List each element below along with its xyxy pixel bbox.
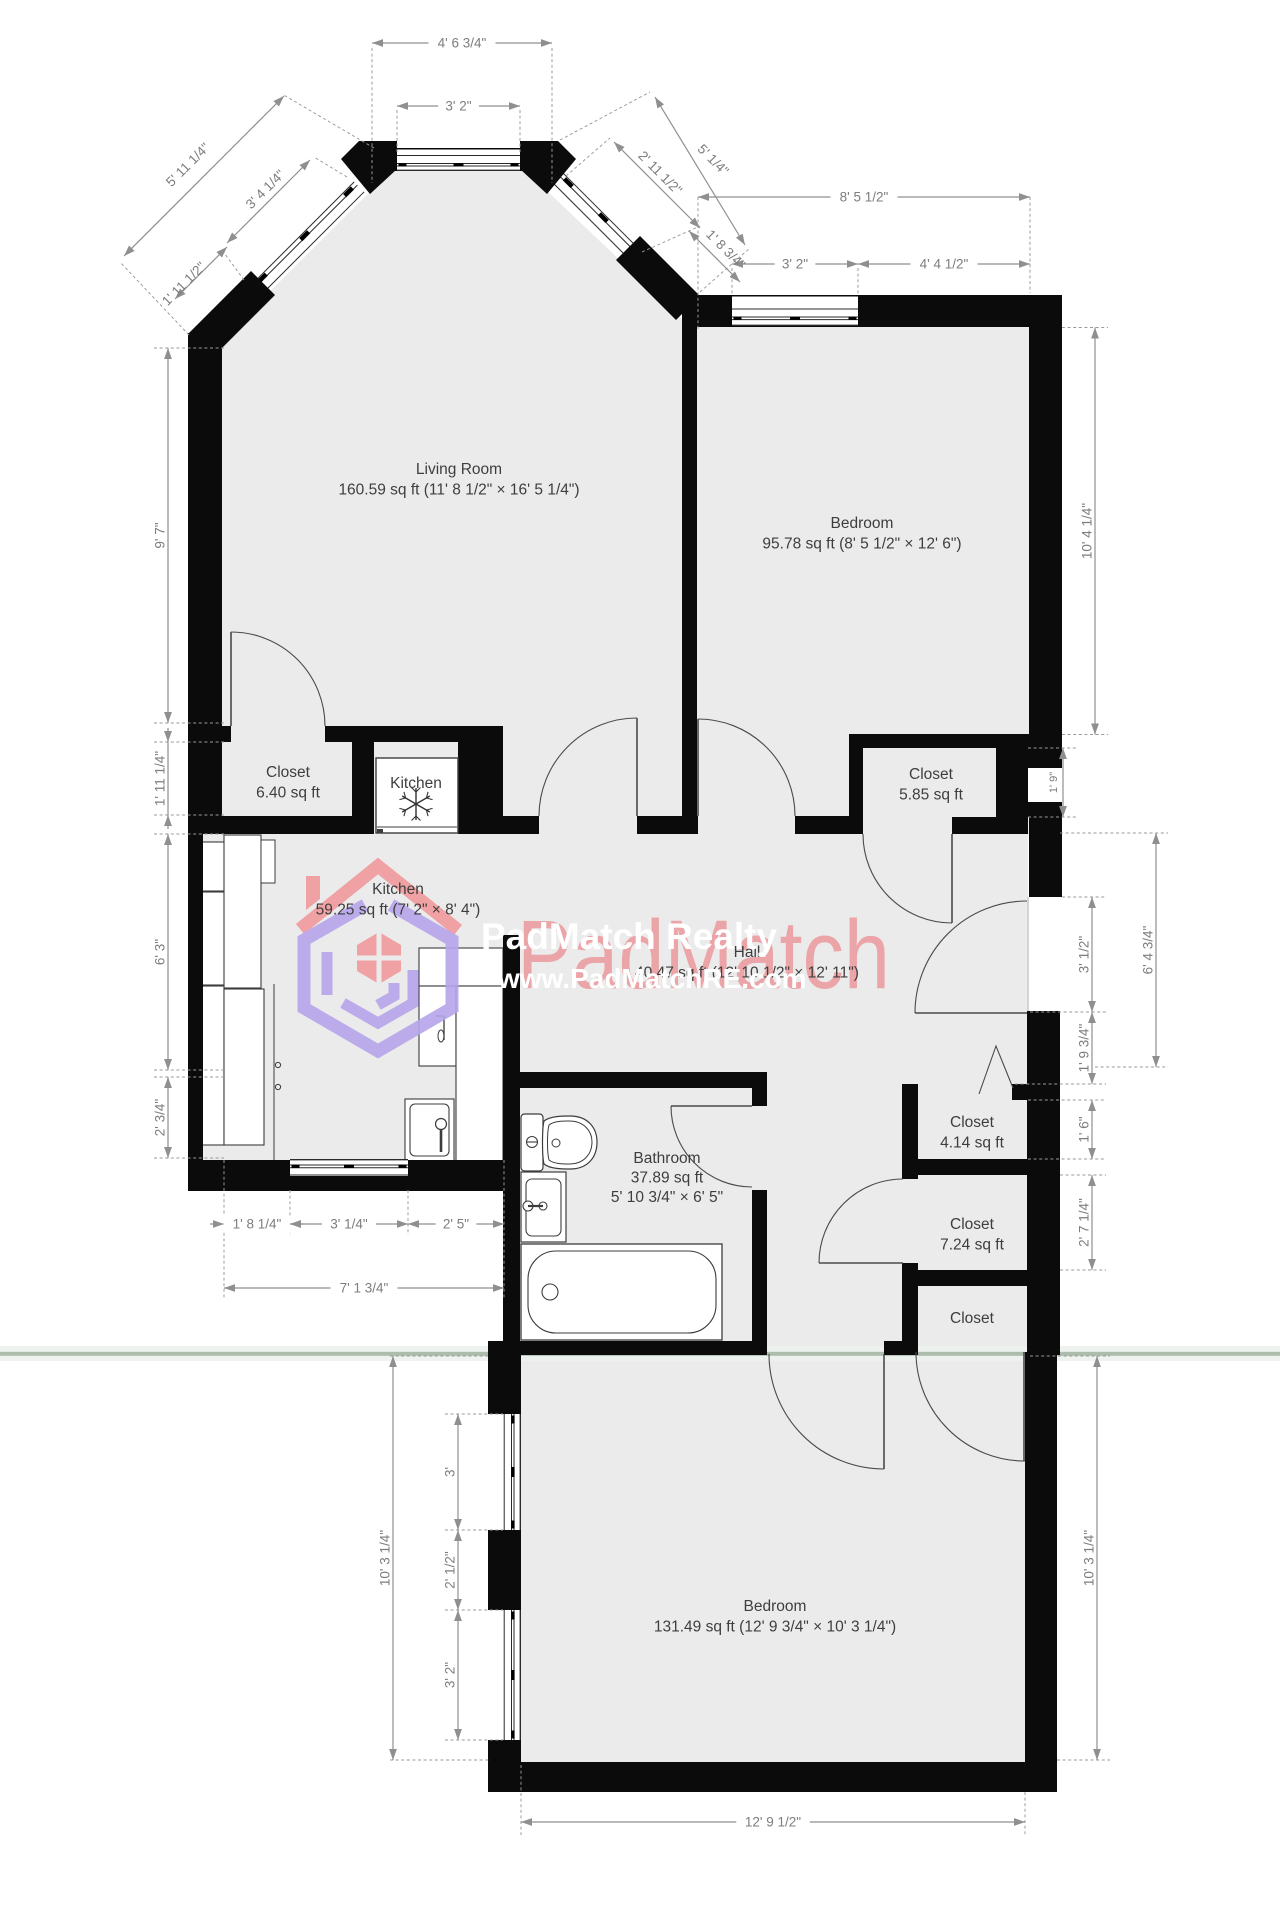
svg-text:3': 3' (443, 1467, 458, 1477)
svg-text:6' 3": 6' 3" (153, 939, 168, 965)
svg-text:4' 6 3/4": 4' 6 3/4" (438, 36, 487, 51)
svg-text:Closet: Closet (266, 764, 311, 781)
svg-text:7' 1 3/4": 7' 1 3/4" (340, 1281, 389, 1296)
svg-text:1' 9": 1' 9" (1048, 772, 1060, 793)
svg-text:Bathroom: Bathroom (633, 1150, 700, 1167)
svg-text:2' 3/4": 2' 3/4" (153, 1099, 168, 1137)
svg-text:5' 10 3/4" × 6' 5": 5' 10 3/4" × 6' 5" (611, 1189, 723, 1206)
svg-text:10' 4 1/4": 10' 4 1/4" (1080, 503, 1095, 559)
svg-text:8' 5 1/2": 8' 5 1/2" (840, 190, 889, 205)
svg-text:2' 1/2": 2' 1/2" (443, 1551, 458, 1589)
svg-text:Closet: Closet (909, 766, 954, 783)
svg-text:Closet: Closet (950, 1216, 995, 1233)
svg-text:Bedroom: Bedroom (744, 1598, 807, 1615)
svg-text:6' 4 3/4": 6' 4 3/4" (1141, 925, 1156, 974)
svg-text:6.40 sq ft: 6.40 sq ft (256, 785, 320, 802)
svg-text:131.49 sq ft (12' 9 3/4" × 10': 131.49 sq ft (12' 9 3/4" × 10' 3 1/4") (654, 1619, 896, 1636)
svg-text:1' 8 1/4": 1' 8 1/4" (233, 1217, 282, 1232)
svg-text:10' 3 1/4": 10' 3 1/4" (1082, 1530, 1097, 1586)
svg-text:160.59 sq ft (11' 8 1/2" × 16': 160.59 sq ft (11' 8 1/2" × 16' 5 1/4") (338, 482, 579, 499)
svg-text:95.78 sq ft (8' 5 1/2" × 12' 6: 95.78 sq ft (8' 5 1/2" × 12' 6") (762, 536, 961, 553)
svg-text:Closet: Closet (950, 1310, 995, 1327)
svg-text:1' 9 3/4": 1' 9 3/4" (1077, 1023, 1092, 1072)
svg-text:12' 9 1/2": 12' 9 1/2" (745, 1815, 801, 1830)
svg-text:3' 2": 3' 2" (445, 99, 471, 114)
svg-text:3' 1/4": 3' 1/4" (330, 1217, 368, 1232)
svg-text:Bedroom: Bedroom (831, 515, 894, 532)
svg-text:3' 2": 3' 2" (782, 257, 808, 272)
svg-text:3' 2": 3' 2" (443, 1662, 458, 1688)
svg-text:Living Room: Living Room (416, 461, 502, 478)
svg-text:2' 7 1/4": 2' 7 1/4" (1077, 1198, 1092, 1247)
svg-text:9' 7": 9' 7" (153, 522, 168, 548)
svg-text:2' 5": 2' 5" (443, 1217, 469, 1232)
svg-text:1' 6": 1' 6" (1077, 1116, 1092, 1142)
svg-text:Closet: Closet (950, 1114, 995, 1131)
svg-text:59.25 sq ft (7' 2" × 8' 4"): 59.25 sq ft (7' 2" × 8' 4") (316, 902, 481, 919)
svg-text:4.14 sq ft: 4.14 sq ft (940, 1135, 1004, 1152)
svg-text:PadMatch Realty: PadMatch Realty (481, 916, 778, 957)
svg-text:3' 1/2": 3' 1/2" (1077, 936, 1092, 974)
svg-text:37.89 sq ft: 37.89 sq ft (631, 1170, 704, 1187)
svg-text:1' 11 1/4": 1' 11 1/4" (153, 751, 168, 806)
svg-text:7.24 sq ft: 7.24 sq ft (940, 1237, 1004, 1254)
svg-text:5.85 sq ft: 5.85 sq ft (899, 787, 963, 804)
svg-text:10' 3 1/4": 10' 3 1/4" (378, 1530, 393, 1586)
svg-text:4' 4 1/2": 4' 4 1/2" (920, 257, 969, 272)
svg-text:Kitchen: Kitchen (372, 881, 424, 898)
svg-text:www.PadMatchRE.com: www.PadMatchRE.com (497, 963, 807, 994)
